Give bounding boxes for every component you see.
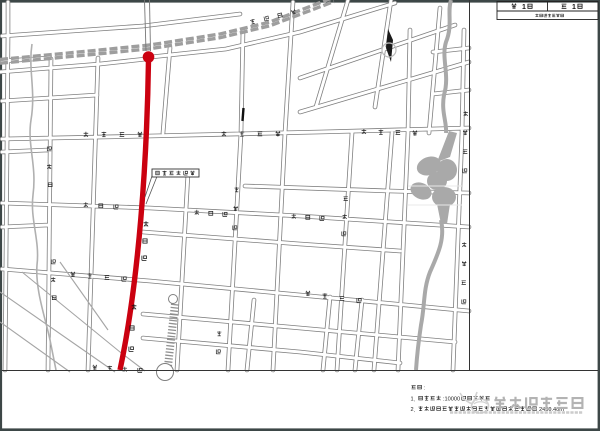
svg-text:,: ,	[414, 397, 415, 402]
svg-text:1: 1	[522, 4, 526, 11]
svg-text:1: 1	[572, 4, 576, 11]
svg-text:,: ,	[414, 408, 415, 413]
svg-text::10000: :10000	[443, 397, 460, 403]
svg-text::: :	[424, 386, 425, 392]
